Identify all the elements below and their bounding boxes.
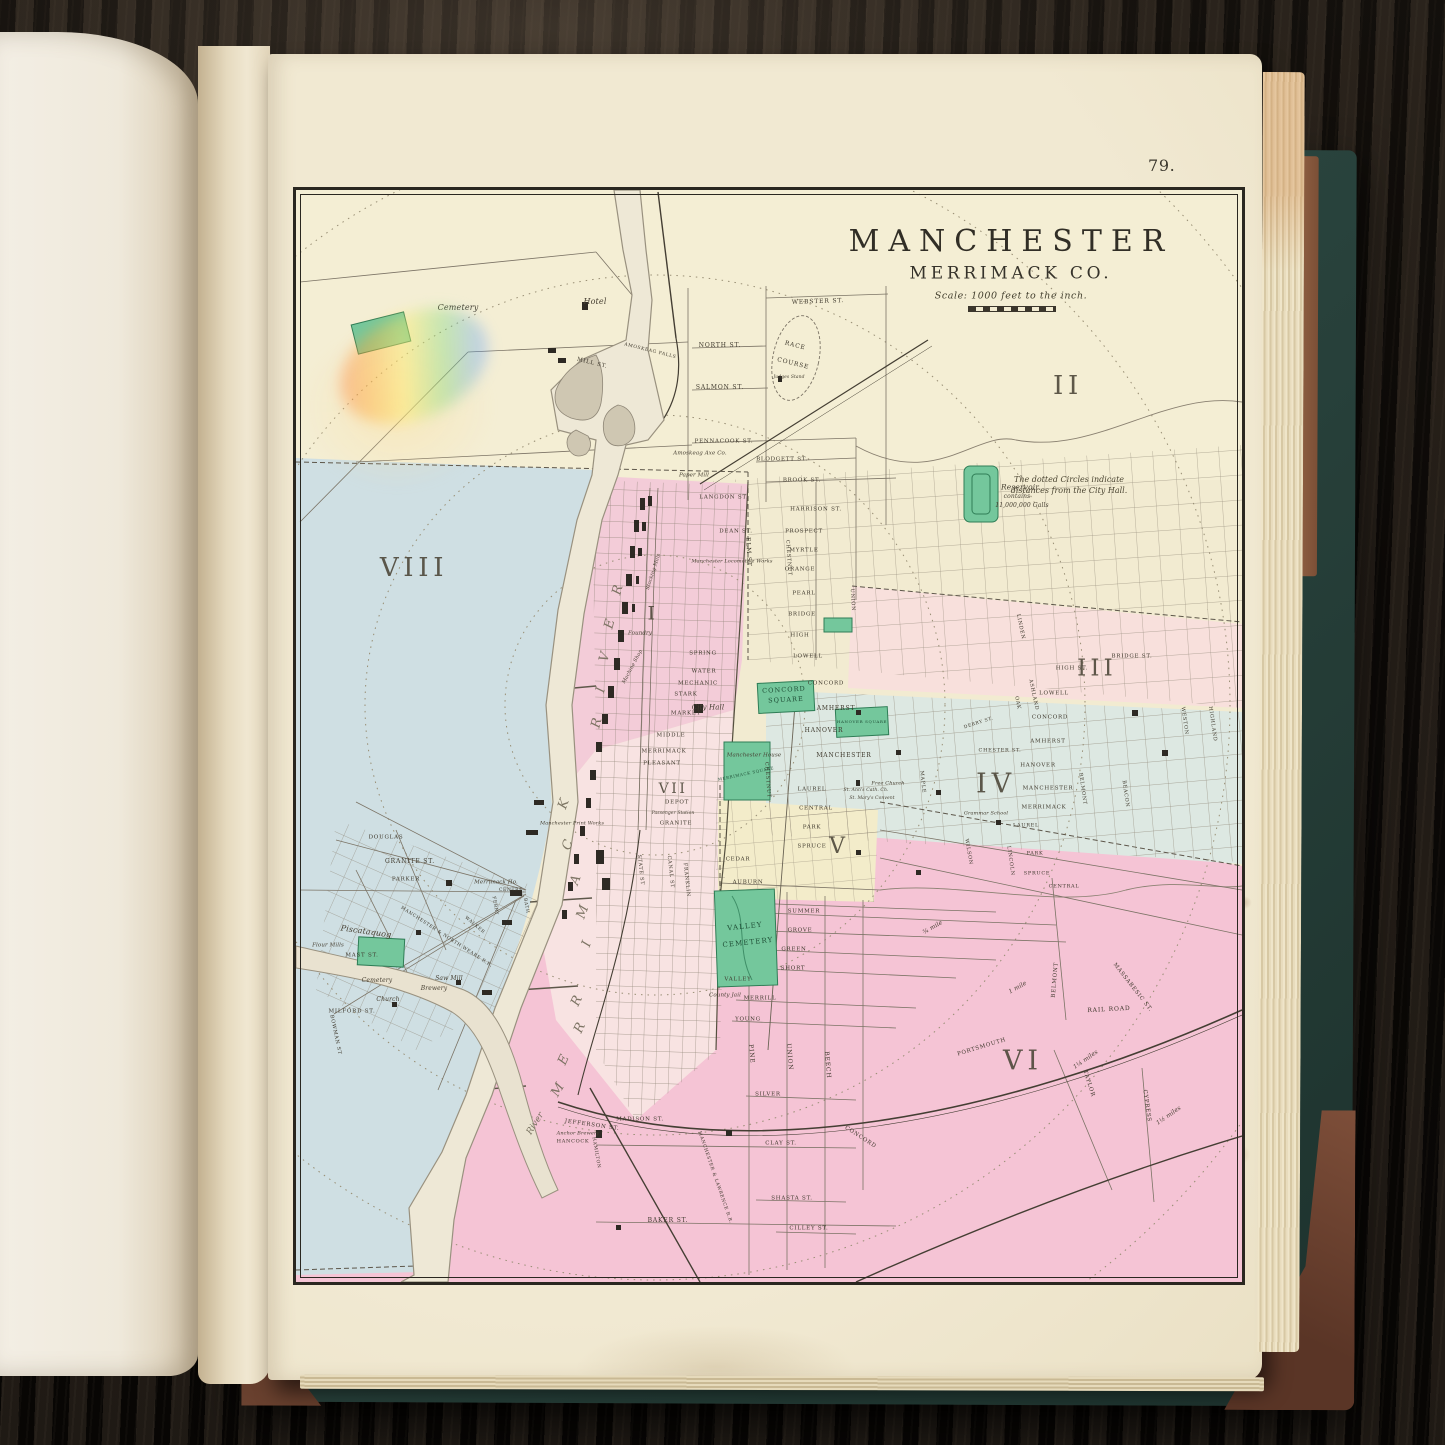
map-label: DOUGLAS <box>369 835 404 841</box>
map-label: E <box>556 1053 572 1067</box>
map-label: St. Mary's Convent <box>849 797 894 802</box>
map-label: SPRUCE <box>797 844 826 850</box>
map-label: AUBURN <box>733 880 764 886</box>
map-label: SPRUCE <box>1024 872 1050 877</box>
map-label: I <box>648 605 659 624</box>
map-label: Judges Stand <box>773 376 804 381</box>
map-label: R <box>572 1021 588 1035</box>
page-edges-bottom <box>300 1375 1264 1392</box>
map-label: MERRILL <box>744 996 777 1002</box>
map-label: V <box>598 651 613 663</box>
map-label: LANGDON ST. <box>699 495 748 501</box>
map-label: R <box>610 584 625 597</box>
map-label: GREEN <box>781 947 806 953</box>
map-label: Cemetery <box>362 978 393 984</box>
map-label: CONCORD <box>1032 715 1068 721</box>
map-label: contains <box>1004 494 1031 500</box>
map-label: R <box>569 994 585 1008</box>
map-label: Anchor Brewery <box>557 1132 600 1137</box>
map-canvas: MANCHESTER MERRIMACK CO. Scale: 1000 fee… <box>296 190 1242 1282</box>
map-label: VIII <box>380 555 448 581</box>
map-label: MARKET <box>671 711 701 717</box>
map-label: CLAY ST. <box>765 1141 797 1147</box>
map-label: MANCHESTER & NORTH WEARE R.R. <box>399 907 492 970</box>
map-label: GRANITE ST. <box>385 859 435 865</box>
map-label: VII <box>659 782 688 796</box>
map-label: HANCOCK <box>557 1140 590 1145</box>
map-label: MANCHESTER & LAWRENCE R.R. <box>696 1131 732 1225</box>
map-label: CENTRAL <box>799 806 833 812</box>
map-label: AMHERST <box>1030 739 1065 745</box>
map-label: 1 mile <box>1008 981 1028 996</box>
map-label: CYPRESS <box>1141 1090 1151 1123</box>
map-labels: IIVIIIIIIIIVVVIVIIThe dotted Circles ind… <box>296 190 1242 1282</box>
map-label: Saw Mill <box>435 976 463 982</box>
page-number: 79. <box>1148 156 1175 175</box>
map-label: Manchester House <box>727 753 781 759</box>
book-gutter <box>198 46 270 1384</box>
map-label: AMOSKEAG FALLS <box>624 343 677 360</box>
map-label: STATE ST <box>636 854 644 885</box>
map-label: Piscataquog <box>340 924 392 939</box>
map-label: RACE <box>784 341 806 352</box>
map-label: CEMETERY <box>722 937 774 949</box>
map-label: HANOVER <box>1020 763 1056 769</box>
map-label: 1¼ miles <box>1073 1049 1100 1070</box>
map-label: I <box>580 939 594 948</box>
map-label: River <box>526 1111 547 1136</box>
map-label: Foundry <box>628 631 652 637</box>
map-label: ASHLAND <box>1027 679 1038 711</box>
map-label: SQUARE <box>768 696 804 704</box>
map-label: MADISON ST. <box>616 1117 664 1123</box>
map-label: Merrimack Ho. <box>474 880 518 886</box>
map-label: UNION <box>849 589 856 612</box>
map-label: Machine Shop <box>622 649 644 684</box>
map-label: LINCOLN <box>1005 846 1014 877</box>
map-label: Manchester Print Works <box>540 822 604 827</box>
map-label: SUMMER <box>788 909 820 915</box>
page-edges <box>1257 72 1305 1352</box>
map-label: Brewery <box>421 986 448 992</box>
map-label: Free Church <box>871 782 904 787</box>
map-label: VI <box>1003 1048 1043 1075</box>
map-label: BLODGETT ST. <box>756 457 808 463</box>
map-label: V <box>829 836 849 858</box>
map-label: VALLEY <box>727 922 763 933</box>
map-label: BELMONT <box>1077 773 1086 806</box>
map-label: MILL ST. <box>576 358 608 371</box>
map-label: Passenger Station <box>652 812 695 817</box>
map-label: ¾ mile <box>922 920 944 936</box>
map-label: CENTRAL <box>1049 885 1080 890</box>
map-label: BOWMAN ST <box>328 1015 341 1056</box>
map-label: RAIL ROAD <box>1087 1006 1131 1014</box>
map-label: BAKER ST. <box>648 1218 689 1224</box>
map-label: CONCORD <box>762 686 806 695</box>
map-label: County Jail <box>709 993 741 999</box>
map-label: Manchester Locomotive Works <box>691 560 772 565</box>
map-label: OAK <box>1013 696 1021 710</box>
map-label: MAST ST. <box>345 953 378 959</box>
map-label: I <box>594 686 608 694</box>
map-label: II <box>1053 373 1083 399</box>
map-label: MIDDLE <box>657 733 686 739</box>
map-label: DERRY ST. <box>964 717 994 731</box>
map-label: MYRTLE <box>789 548 818 554</box>
map-label: M <box>575 904 592 921</box>
map-label: Flour Mills <box>312 943 344 949</box>
map-label: FRANKLIN <box>682 863 691 898</box>
map-label: PEARL <box>792 591 815 597</box>
map-label: BEECH <box>823 1051 831 1079</box>
map-label: HAMILTON <box>590 1137 600 1169</box>
map-label: CHESTER ST. <box>979 749 1022 754</box>
map-label: VALLEY <box>724 977 751 983</box>
map-label: DEPOT <box>665 800 689 806</box>
map-label: SPRING <box>689 651 717 657</box>
map-label: Church <box>376 997 399 1003</box>
map-label: TAYLOR <box>1081 1070 1095 1098</box>
map-label: HIGH ST. <box>1056 666 1088 672</box>
map-label: MANCHESTER <box>1023 786 1074 792</box>
map-label: 1½ miles <box>1156 1105 1183 1126</box>
map-label: PINE <box>747 1044 755 1064</box>
map-label: HIGHLAND <box>1207 706 1217 742</box>
map-label: PLEASANT <box>643 761 681 767</box>
map-frame: MANCHESTER MERRIMACK CO. Scale: 1000 fee… <box>296 190 1242 1282</box>
map-label: LINDEN <box>1015 614 1025 640</box>
map-label: St. Ann's Cath. Ch. <box>844 789 889 794</box>
map-label: Grammar School <box>964 812 1008 817</box>
map-label: PARK <box>1027 852 1044 857</box>
map-label: WESTON <box>1180 707 1189 736</box>
map-label: Hotel <box>583 298 606 306</box>
map-label: Amoskeag Axe Co. <box>673 451 726 457</box>
map-label: STARK <box>674 692 697 698</box>
map-label: LAUREL <box>1013 824 1039 829</box>
map-label: LOWELL <box>793 654 823 660</box>
map-label: SHORT <box>781 966 806 972</box>
map-label: Reservoir <box>1001 483 1039 491</box>
map-label: BEACON <box>1121 780 1130 808</box>
map-label: R <box>589 717 604 730</box>
map-label: CENTRE <box>499 889 523 894</box>
map-label: NORTH ST. <box>699 343 741 349</box>
map-label: PARK <box>803 825 822 831</box>
map-label: LAUREL <box>798 787 827 793</box>
map-label: FERRY <box>490 896 498 916</box>
map-label: Paper Mill <box>679 473 709 479</box>
map-label: K <box>556 797 572 811</box>
map-label: Stocking Mills <box>646 553 662 590</box>
map-label: GROVE <box>788 928 813 934</box>
map-label: MECHANIC <box>678 681 718 687</box>
map-label: CILLEY ST. <box>789 1226 828 1232</box>
map-label: CANAL ST <box>666 855 674 888</box>
map-label: PARKER <box>392 877 420 883</box>
left-page <box>0 32 198 1376</box>
map-label: PROSPECT <box>785 529 823 535</box>
map-label: PENNACOOK ST. <box>695 439 754 445</box>
map-label: SHASTA ST. <box>771 1196 812 1202</box>
map-label: CONCORD <box>808 681 844 687</box>
map-label: E <box>602 618 617 631</box>
map-label: MERRIMACK <box>1022 805 1067 811</box>
map-label: MANCHESTER <box>816 753 871 759</box>
map-label: UNION <box>785 1043 793 1070</box>
map-label: WEBSTER ST. <box>792 298 844 306</box>
map-label: AMHERST <box>817 706 856 712</box>
map-label: HANOVER SQUARE <box>837 720 887 724</box>
map-label: PORTSMOUTH <box>957 1038 1007 1058</box>
map-label: SILVER <box>755 1092 781 1098</box>
map-label: MAPLE <box>918 771 925 794</box>
map-label: M <box>549 1081 567 1099</box>
map-label: WILSON <box>963 838 973 865</box>
map-label: HARRISON ST. <box>790 507 842 513</box>
map-label: YOUNG <box>735 1017 761 1023</box>
map-label: A <box>568 873 583 886</box>
map-label: Cemetery <box>438 304 479 312</box>
map-label: BRIDGE <box>788 612 816 618</box>
map-label: SALMON ST. <box>696 385 744 391</box>
map-label: WATER <box>692 669 717 675</box>
map-label: CONCORD <box>843 1126 876 1150</box>
map-label: 11,000,000 Galls <box>995 503 1048 509</box>
map-label: DEAN ST. <box>719 529 753 535</box>
map-label: MILFORD ST. <box>329 1009 376 1015</box>
map-label: HANOVER <box>805 728 844 734</box>
map-label: GRANITE <box>660 821 693 827</box>
photo-of-atlas: { "page": { "number": "79." }, "map": { … <box>0 0 1445 1445</box>
map-label: C <box>560 838 576 852</box>
map-label: LOWELL <box>1039 691 1069 697</box>
map-label: MERRIMACK <box>642 749 687 755</box>
map-label: BRIDGE ST. <box>1112 654 1153 660</box>
map-label: COURSE <box>776 357 809 371</box>
map-label: BATH <box>521 898 528 914</box>
map-label: ELM ST <box>744 537 752 567</box>
map-label: CEDAR <box>726 857 751 863</box>
map-label: BELMONT <box>1052 962 1061 998</box>
map-label: HIGH <box>790 633 809 639</box>
map-label: WALKER <box>463 916 485 935</box>
map-label: BROOK ST. <box>783 478 821 484</box>
map-label: IV <box>976 771 1016 798</box>
